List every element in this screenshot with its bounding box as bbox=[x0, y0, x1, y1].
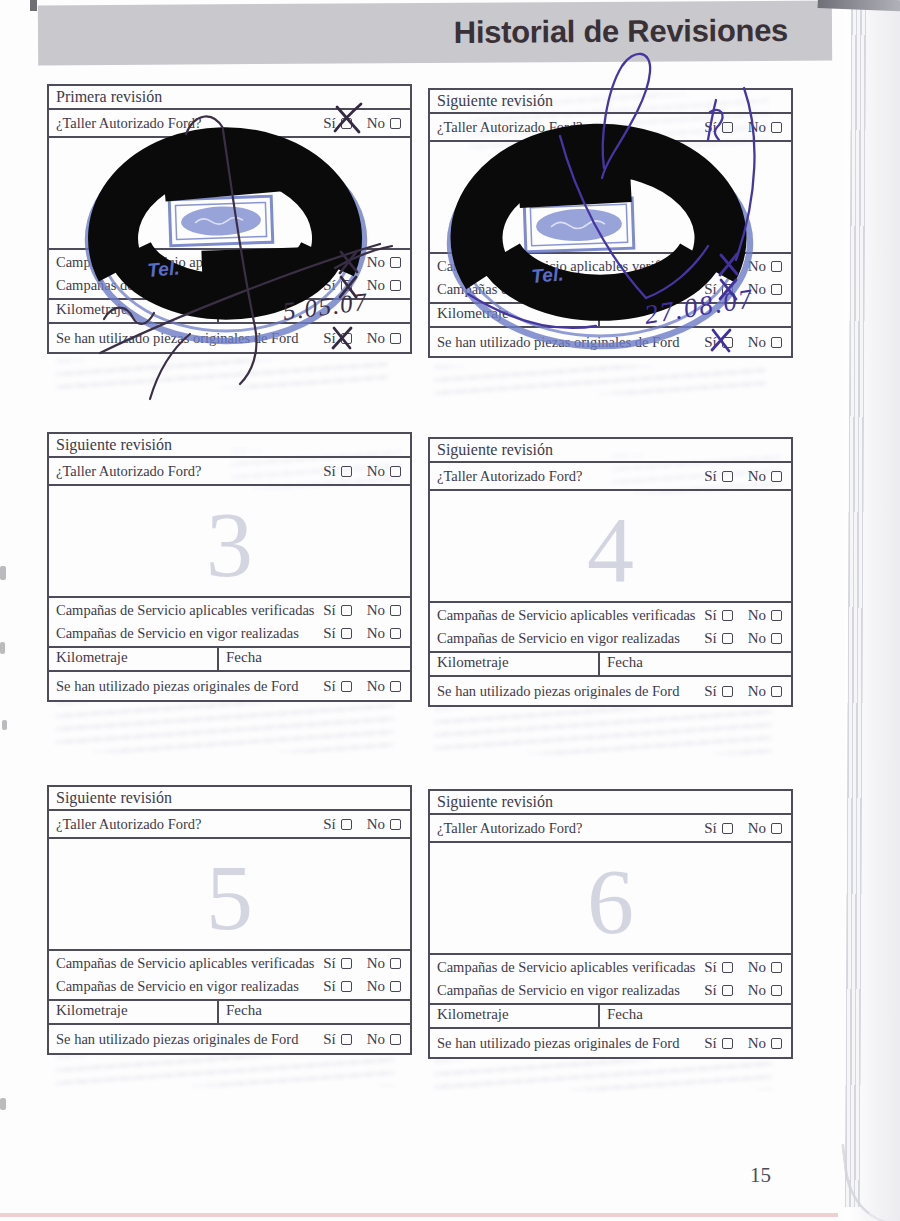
si-label: Sí bbox=[704, 1035, 717, 1052]
fecha-label: Fecha bbox=[219, 648, 410, 670]
si-checkbox bbox=[341, 280, 352, 291]
no-label: No bbox=[748, 982, 766, 999]
no-checkbox bbox=[771, 471, 782, 482]
kilometraje-label: Kilometraje bbox=[430, 653, 600, 675]
no-checkbox bbox=[771, 686, 782, 697]
kilometraje-label: Kilometraje bbox=[49, 300, 219, 322]
no-checkbox bbox=[771, 261, 782, 272]
si-checkbox bbox=[722, 284, 733, 295]
no-checkbox bbox=[771, 823, 782, 834]
si-checkbox bbox=[341, 958, 352, 969]
si-checkbox bbox=[722, 122, 733, 133]
si-label: Sí bbox=[704, 334, 717, 351]
no-checkbox bbox=[390, 681, 401, 692]
scan-artifact-mark bbox=[2, 720, 7, 730]
piezas-originales-label: Se han utilizado piezas originales de Fo… bbox=[437, 683, 704, 700]
revision-title: Siguiente revisión bbox=[430, 90, 791, 114]
si-label: Sí bbox=[323, 678, 336, 695]
scan-bottom-line bbox=[0, 1213, 838, 1217]
scan-artifact-mark bbox=[30, 0, 37, 11]
si-label: Sí bbox=[704, 281, 717, 298]
taller-autorizado-label: ¿Taller Autorizado Ford? bbox=[437, 119, 704, 136]
no-label: No bbox=[748, 119, 766, 136]
revision-title: Siguiente revisión bbox=[430, 791, 791, 815]
si-label: Sí bbox=[704, 630, 717, 647]
show-through-text bbox=[434, 366, 766, 394]
revision-title: Siguiente revisión bbox=[49, 434, 410, 458]
no-label: No bbox=[748, 281, 766, 298]
no-checkbox bbox=[390, 819, 401, 830]
show-through-text bbox=[56, 702, 394, 752]
no-checkbox bbox=[390, 466, 401, 477]
piezas-originales-label: Se han utilizado piezas originales de Fo… bbox=[56, 1031, 323, 1048]
fecha-label: Fecha bbox=[600, 653, 791, 675]
taller-autorizado-label: ¿Taller Autorizado Ford? bbox=[56, 463, 323, 480]
si-label: Sí bbox=[704, 258, 717, 275]
si-checkbox bbox=[341, 118, 352, 129]
scan-artifact-mark bbox=[0, 566, 6, 580]
page-curl-edge bbox=[845, 0, 900, 1221]
campanas-vigor-label: Campañas de Servicio en vigor realizadas bbox=[437, 982, 704, 999]
si-checkbox bbox=[722, 1038, 733, 1049]
scan-artifact-mark bbox=[0, 1098, 6, 1110]
piezas-originales-label: Se han utilizado piezas originales de Fo… bbox=[437, 334, 704, 351]
kilometraje-label: Kilometraje bbox=[430, 304, 600, 326]
show-through-text bbox=[434, 708, 772, 754]
watermark-number: 5 bbox=[206, 843, 253, 951]
no-checkbox bbox=[390, 981, 401, 992]
kilometraje-label: Kilometraje bbox=[49, 648, 219, 670]
si-checkbox bbox=[722, 962, 733, 973]
no-label: No bbox=[748, 334, 766, 351]
no-label: No bbox=[367, 1031, 385, 1048]
no-checkbox bbox=[771, 284, 782, 295]
no-label: No bbox=[367, 955, 385, 972]
no-label: No bbox=[367, 277, 385, 294]
si-checkbox bbox=[341, 257, 352, 268]
campanas-aplicables-label: Campañas de Servicio aplicables verifica… bbox=[56, 602, 323, 619]
watermark-number: 3 bbox=[206, 490, 253, 598]
revision-box-6: Siguiente revisión ¿Taller Autorizado Fo… bbox=[428, 789, 793, 1059]
header-bar: Historial de Revisiones bbox=[38, 1, 832, 66]
no-label: No bbox=[748, 1035, 766, 1052]
campanas-vigor-label: Campañas de Servicio en vigor realizadas bbox=[437, 281, 704, 298]
kilometraje-label: Kilometraje bbox=[49, 1001, 219, 1023]
no-label: No bbox=[367, 678, 385, 695]
revision-box-2: Siguiente revisión ¿Taller Autorizado Fo… bbox=[428, 88, 793, 358]
si-checkbox bbox=[341, 819, 352, 830]
campanas-aplicables-label: Campañas de Servicio aplicables verifica… bbox=[56, 254, 323, 271]
revision-title: Primera revisión bbox=[49, 86, 410, 110]
stamp-area bbox=[430, 142, 791, 254]
stamp-area: 3 bbox=[49, 486, 410, 598]
no-checkbox bbox=[771, 122, 782, 133]
si-checkbox bbox=[341, 605, 352, 616]
campanas-aplicables-label: Campañas de Servicio aplicables verifica… bbox=[437, 607, 704, 624]
si-checkbox bbox=[722, 471, 733, 482]
si-checkbox bbox=[341, 333, 352, 344]
si-checkbox bbox=[722, 610, 733, 621]
stacked-page-edges bbox=[845, 8, 866, 1207]
stamp-area: 4 bbox=[430, 491, 791, 603]
no-checkbox bbox=[390, 958, 401, 969]
si-checkbox bbox=[722, 261, 733, 272]
no-checkbox bbox=[771, 337, 782, 348]
revision-title: Siguiente revisión bbox=[430, 439, 791, 463]
page-title: Historial de Revisiones bbox=[454, 13, 788, 51]
no-checkbox bbox=[771, 985, 782, 996]
no-label: No bbox=[748, 959, 766, 976]
no-checkbox bbox=[390, 1034, 401, 1045]
page-number: 15 bbox=[750, 1163, 771, 1188]
fecha-label: Fecha bbox=[600, 1005, 791, 1027]
si-label: Sí bbox=[323, 277, 336, 294]
si-label: Sí bbox=[323, 463, 336, 480]
campanas-aplicables-label: Campañas de Servicio aplicables verifica… bbox=[56, 955, 323, 972]
no-label: No bbox=[748, 468, 766, 485]
fecha-label bbox=[600, 304, 791, 326]
campanas-vigor-label: Campañas de Servicio en vigor realizadas bbox=[437, 630, 704, 647]
si-checkbox bbox=[341, 681, 352, 692]
no-checkbox bbox=[771, 1038, 782, 1049]
si-checkbox bbox=[722, 337, 733, 348]
si-label: Sí bbox=[323, 115, 336, 132]
taller-autorizado-label: ¿Taller Autorizado Ford? bbox=[56, 816, 323, 833]
si-checkbox bbox=[341, 466, 352, 477]
fecha-label: Fecha bbox=[219, 1001, 410, 1023]
revision-box-5: Siguiente revisión ¿Taller Autorizado Fo… bbox=[47, 785, 412, 1055]
no-label: No bbox=[367, 978, 385, 995]
si-checkbox bbox=[341, 981, 352, 992]
show-through-text bbox=[434, 1060, 772, 1090]
no-label: No bbox=[367, 602, 385, 619]
si-checkbox bbox=[722, 686, 733, 697]
no-label: No bbox=[748, 683, 766, 700]
si-label: Sí bbox=[323, 625, 336, 642]
si-label: Sí bbox=[704, 982, 717, 999]
campanas-aplicables-label: Campañas de Servicio aplicables verifica… bbox=[437, 258, 704, 275]
no-checkbox bbox=[390, 605, 401, 616]
no-label: No bbox=[367, 816, 385, 833]
revision-box-3: Siguiente revisión ¿Taller Autorizado Fo… bbox=[47, 432, 412, 702]
si-label: Sí bbox=[704, 119, 717, 136]
si-label: Sí bbox=[323, 602, 336, 619]
revision-box-1: Primera revisión ¿Taller Autorizado Ford… bbox=[47, 84, 412, 354]
no-label: No bbox=[367, 254, 385, 271]
campanas-aplicables-label: Campañas de Servicio aplicables verifica… bbox=[437, 959, 704, 976]
no-checkbox bbox=[390, 118, 401, 129]
si-label: Sí bbox=[323, 254, 336, 271]
si-checkbox bbox=[722, 823, 733, 834]
watermark-number: 6 bbox=[587, 847, 634, 955]
si-label: Sí bbox=[323, 816, 336, 833]
no-checkbox bbox=[390, 628, 401, 639]
campanas-vigor-label: Campañas de Servicio en vigor realizadas bbox=[56, 978, 323, 995]
no-checkbox bbox=[390, 333, 401, 344]
si-checkbox bbox=[341, 1034, 352, 1045]
no-checkbox bbox=[390, 280, 401, 291]
si-checkbox bbox=[722, 985, 733, 996]
no-checkbox bbox=[771, 610, 782, 621]
taller-autorizado-label: ¿Taller Autorizado Ford? bbox=[56, 115, 323, 132]
si-label: Sí bbox=[704, 683, 717, 700]
si-label: Sí bbox=[323, 978, 336, 995]
scanned-service-book-page: Historial de Revisiones Primera revisión… bbox=[0, 0, 900, 1221]
stamp-area bbox=[49, 138, 410, 250]
no-label: No bbox=[748, 607, 766, 624]
stamp-area: 5 bbox=[49, 839, 410, 951]
si-label: Sí bbox=[323, 955, 336, 972]
si-label: Sí bbox=[704, 607, 717, 624]
si-checkbox bbox=[722, 633, 733, 644]
piezas-originales-label: Se han utilizado piezas originales de Fo… bbox=[437, 1035, 704, 1052]
si-label: Sí bbox=[323, 1031, 336, 1048]
show-through-text bbox=[56, 1056, 394, 1086]
revision-title: Siguiente revisión bbox=[49, 787, 410, 811]
campanas-vigor-label: Campañas de Servicio en vigor realizadas bbox=[56, 625, 323, 642]
taller-autorizado-label: ¿Taller Autorizado Ford? bbox=[437, 468, 704, 485]
no-label: No bbox=[748, 630, 766, 647]
piezas-originales-label: Se han utilizado piezas originales de Fo… bbox=[56, 330, 323, 347]
no-checkbox bbox=[390, 257, 401, 268]
show-through-text bbox=[56, 360, 388, 388]
taller-autorizado-label: ¿Taller Autorizado Ford? bbox=[437, 820, 704, 837]
piezas-originales-label: Se han utilizado piezas originales de Fo… bbox=[56, 678, 323, 695]
no-checkbox bbox=[771, 633, 782, 644]
no-label: No bbox=[367, 115, 385, 132]
si-label: Sí bbox=[704, 820, 717, 837]
no-label: No bbox=[748, 820, 766, 837]
no-label: No bbox=[367, 625, 385, 642]
campanas-vigor-label: Campañas de Servicio en vigor realizadas bbox=[56, 277, 323, 294]
no-checkbox bbox=[771, 962, 782, 973]
si-label: Sí bbox=[704, 959, 717, 976]
si-checkbox bbox=[341, 628, 352, 639]
scan-artifact-mark bbox=[0, 642, 5, 654]
revision-box-4: Siguiente revisión ¿Taller Autorizado Fo… bbox=[428, 437, 793, 707]
kilometraje-label: Kilometraje bbox=[430, 1005, 600, 1027]
fecha-label: Fecha bbox=[219, 300, 410, 322]
stamp-area: 6 bbox=[430, 843, 791, 955]
no-label: No bbox=[367, 330, 385, 347]
si-label: Sí bbox=[323, 330, 336, 347]
no-label: No bbox=[748, 258, 766, 275]
watermark-number: 4 bbox=[587, 495, 634, 603]
no-label: No bbox=[367, 463, 385, 480]
si-label: Sí bbox=[704, 468, 717, 485]
